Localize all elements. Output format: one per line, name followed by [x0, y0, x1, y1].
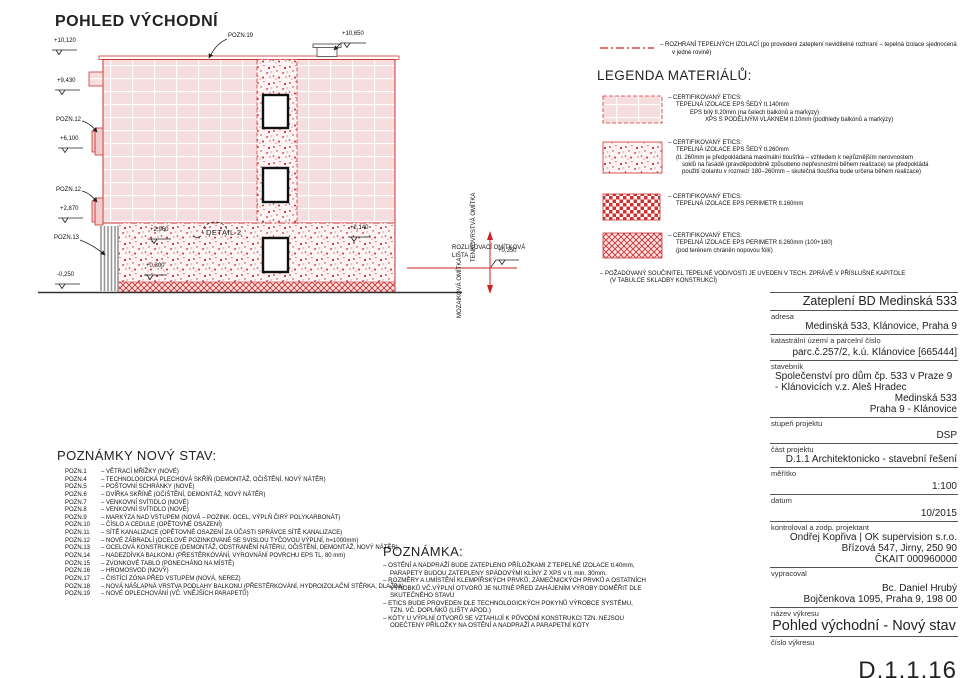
note-ref-label: POZN.12 [56, 187, 81, 193]
remark-line: – KÓTY U VÝPLNÍ OTVORŮ SE VZTAHUJÍ K PŮV… [383, 615, 646, 623]
note-row: POZN.19– NOVÉ OPLECHOVÁNÍ (VČ. VNĚJŠÍCH … [65, 591, 404, 597]
note-id: POZN.14 [65, 553, 101, 559]
note-text: – TECHNOLOGICKÁ PLECHOVÁ SKŘÍŇ (DEMONTÁŽ… [101, 477, 326, 483]
note-row: POZN.8– VENKOVNÍ SVÍTIDLO (NOVÉ) [65, 507, 404, 513]
field-nazev: název výkresu Pohled východní - Nový sta… [770, 608, 958, 637]
field-katastr: katastrální území a parcelní číslo parc.… [770, 335, 958, 361]
note-ref-label: POZN.19 [228, 33, 253, 39]
note-id: POZN.10 [65, 522, 101, 528]
note-id: POZN.18 [65, 584, 101, 590]
elevation-label: +10,120 [54, 38, 76, 44]
field-value: Bojčenkova 1095, Praha 9, 198 00 [771, 594, 957, 605]
legend-line: TEPELNÁ IZOLACE EPS ŠEDÝ tl.260mm [668, 147, 929, 154]
legend-line: TEPELNÁ IZOLACE EPS PERIMETR tl.160mm [668, 201, 803, 208]
drawing-title: POHLED VÝCHODNÍ [55, 13, 218, 31]
note-id: POZN.9 [65, 515, 101, 521]
note-text: – NADEZDÍVKA BALKONU (PŘESTĚRKOVÁNÍ, VYR… [101, 553, 345, 559]
note-id: POZN.5 [65, 484, 101, 490]
render-bottom-label: MOZAIKOVÁ OMÍTKA [457, 258, 463, 318]
field-label: katastrální území a parcelní číslo [771, 336, 957, 345]
remark-line: – ROZMĚRY A UMÍSTĚNÍ KLEMPÍŘSKÝCH PRVKŮ,… [383, 577, 646, 585]
drawing-number: D.1.1.16 [771, 657, 957, 678]
elevation-label: +6,100 [60, 136, 79, 142]
note-row: POZN.11– SÍTĚ KANALIZACE (OPĚTOVNÉ OSAZE… [65, 530, 404, 536]
note-id: POZN.17 [65, 576, 101, 582]
note-text: – NOVÉ ZÁBRADLÍ (OCELOVÉ POZINKOVANÉ SE … [101, 538, 358, 544]
field-stupen: stupeň projektu DSP [770, 418, 958, 444]
note-row: POZN.12– NOVÉ ZÁBRADLÍ (OCELOVÉ POZINKOV… [65, 538, 404, 544]
elevation-label: +9,430 [57, 78, 76, 84]
note-id: POZN.13 [65, 545, 101, 551]
legend-item: – CERTIFIKOVANÝ ETICS: TEPELNÁ IZOLACE E… [668, 233, 833, 255]
elevation-label: -0,250 [57, 272, 74, 278]
note-text: – HROMOSVOD (NOVÝ) [101, 568, 169, 574]
note-id: POZN.4 [65, 477, 101, 483]
remark-line: ODEČTENY PŘÍLOŽKY NA OSTĚNÍ A NADPRAŽÍ A… [383, 622, 646, 630]
detail-label: DETAIL 2 [206, 228, 242, 237]
note-row: POZN.10– ČÍSLO A CEDULE (OPĚTOVNÉ OSAZEN… [65, 522, 404, 528]
note-text: – VENKOVNÍ SVÍTIDLO (NOVÉ) [101, 500, 189, 506]
field-label: číslo výkresu [771, 638, 957, 647]
field-label: stupeň projektu [771, 419, 957, 428]
remark-line: – OSTĚNÍ A NADPRAŽÍ BUDE ZATEPLENO PŘÍLO… [383, 562, 646, 570]
field-datum: datum 10/2015 [770, 495, 958, 522]
legend-item: – CERTIFIKOVANÝ ETICS: TEPELNÁ IZOLACE E… [668, 140, 929, 176]
elevation-label: +2,960 [150, 227, 169, 233]
elevation-label: +2,870 [60, 206, 79, 212]
field-kontroloval: kontroloval a zodp. projektant Ondřej Ko… [770, 522, 958, 568]
field-cast: část projektu D.1.1 Architektonicko - st… [770, 444, 958, 468]
project-title: Zateplení BD Medinská 533 [770, 293, 958, 311]
note-id: POZN.15 [65, 561, 101, 567]
notes-list: POZN.1– VĚTRACÍ MŘÍŽKY (NOVÉ) POZN.4– TE… [65, 469, 404, 599]
legend-line: soklů na fasádě (pravděpodobně způsobeno… [668, 162, 929, 169]
note-row: POZN.4– TECHNOLOGICKÁ PLECHOVÁ SKŘÍŇ (DE… [65, 477, 404, 483]
field-value: Ondřej Kopřiva | OK supervision s.r.o. [771, 532, 957, 543]
note-id: POZN.7 [65, 500, 101, 506]
note-id: POZN.6 [65, 492, 101, 498]
note-row: POZN.14– NADEZDÍVKA BALKONU (PŘESTĚRKOVÁ… [65, 553, 404, 559]
boundary-note-line: – ROZHRANÍ TEPELNÝCH IZOLACÍ (po provede… [660, 42, 957, 48]
note-text: – DVÍŘKA SKŘÍNĚ (OČIŠTĚNÍ, DEMONTÁŽ, NOV… [101, 492, 265, 498]
note-row: POZN.7– VENKOVNÍ SVÍTIDLO (NOVÉ) [65, 500, 404, 506]
legend-line: EPS bílý tl.20mm (na čelech balkónů a ma… [668, 110, 893, 117]
legend-footnote: – POŽADOVANÝ SOUČINITEL TEPELNÉ VODIVOST… [600, 271, 905, 286]
field-label: měřítko [771, 469, 957, 478]
field-label: vypracoval [771, 569, 957, 578]
remark-list: – OSTĚNÍ A NADPRAŽÍ BUDE ZATEPLENO PŘÍLO… [383, 562, 646, 630]
legend-line: (pod terénem chráněn nopovou fólií) [668, 248, 833, 255]
field-value: parc.č.257/2, k.ú. Klánovice [665444] [771, 347, 957, 358]
legend-line: XPS S PODÉLNÝM VLÁKNEM tl.10mm (podhledy… [668, 117, 893, 124]
field-label: adresa [771, 312, 957, 321]
note-text: – NOVÁ NÁŠLAPNÁ VRSTVA PODLAHY BALKONU (… [101, 584, 404, 590]
field-value: Břízová 547, Jirny, 250 90 [771, 543, 957, 554]
boundary-note-line: v jedné rovině) [672, 50, 711, 56]
field-value: DSP [771, 430, 957, 441]
note-text: – SÍTĚ KANALIZACE (OPĚTOVNÉ OSAZENÍ ZA Ú… [101, 530, 342, 536]
note-id: POZN.11 [65, 530, 101, 536]
windows [263, 95, 288, 272]
note-row: POZN.17– ČISTÍCÍ ZÓNA PŘED VSTUPEM (NOVÁ… [65, 576, 404, 582]
field-vypracoval: vypracoval Bc. Daniel Hrubý Bojčenkova 1… [770, 568, 958, 608]
drawing-sheet: POHLED VÝCHODNÍ +10,120 +9,430 POZN.12 +… [0, 0, 960, 678]
note-row: POZN.16– HROMOSVOD (NOVÝ) [65, 568, 404, 574]
elevation-label: +10,650 [342, 31, 364, 37]
note-text: – ZVONKOVÉ TABLO (PONECHÁNO NA MÍSTĚ) [101, 561, 234, 567]
note-text: – ČISTÍCÍ ZÓNA PŘED VSTUPEM (NOVÁ, NEREZ… [101, 576, 241, 582]
note-id: POZN.16 [65, 568, 101, 574]
field-label: stavebník [771, 362, 957, 371]
field-meritko: měřítko 1:100 [770, 468, 958, 495]
note-text: – POŠTOVNÍ SCHRÁNKY (NOVÉ) [101, 484, 194, 490]
field-value: 1:100 [771, 481, 957, 492]
field-label: název výkresu [771, 609, 957, 618]
edge-strip-label: ROZLIŠOVACÍ OMÍTKOVÁ [452, 245, 525, 251]
remark-line: TZN. VČ. DOPLŇKŮ (LIŠTY APOD.) [383, 607, 646, 615]
drawing-name: Pohled východní - Nový stav [771, 618, 957, 634]
legend-item: – CERTIFIKOVANÝ ETICS: TEPELNÁ IZOLACE E… [668, 194, 803, 209]
note-ref-label: POZN.12 [56, 117, 81, 123]
legend-line: (V TABULCE SKLADBY KONSTRUKCÍ) [600, 278, 905, 285]
note-id: POZN.19 [65, 591, 101, 597]
note-text: – NOVÉ OPLECHOVÁNÍ (VČ. VNĚJŠÍCH PARAPET… [101, 591, 249, 597]
legend-line: použití izolantu v rozmezí 180–260mm – s… [668, 169, 929, 176]
note-id: POZN.12 [65, 538, 101, 544]
remark-line: – ETICS BUDE PROVEDEN DLE TECHNOLOGICKÝC… [383, 600, 646, 608]
remark-title: POZNÁMKA: [383, 544, 463, 559]
note-row: POZN.6– DVÍŘKA SKŘÍNĚ (OČIŠTĚNÍ, DEMONTÁ… [65, 492, 404, 498]
field-label: část projektu [771, 445, 957, 454]
balcony-edges [92, 128, 103, 225]
remark-line: VÝROBKŮ VČ.VÝPLNÍ OTVORŮ JE NUTNÉ PŘED Z… [383, 585, 646, 593]
note-text: – OCELOVÁ KONSTRUKCE (DEMONTÁŽ, ODSTRANĚ… [101, 545, 398, 551]
field-value: Praha 9 - Klánovice [771, 404, 957, 415]
legend-line: TEPELNÁ IZOLACE EPS ŠEDÝ tl.140mm [668, 102, 893, 109]
note-text: – ČÍSLO A CEDULE (OPĚTOVNÉ OSAZENÍ) [101, 522, 222, 528]
notes-title: POZNÁMKY NOVÝ STAV: [57, 448, 217, 463]
note-row: POZN.18– NOVÁ NÁŠLAPNÁ VRSTVA PODLAHY BA… [65, 584, 404, 590]
note-row: POZN.13– OCELOVÁ KONSTRUKCE (DEMONTÁŽ, O… [65, 545, 404, 551]
note-id: POZN.8 [65, 507, 101, 513]
remark-line: SKUTEČNÉHO STAVU [383, 592, 646, 600]
note-row: POZN.15– ZVONKOVÉ TABLO (PONECHÁNO NA MÍ… [65, 561, 404, 567]
note-row: POZN.9– MARKÝZA NAD VSTUPEM (NOVÁ – POZI… [65, 515, 404, 521]
field-value: D.1.1 Architektonicko - stavební řešení [771, 454, 957, 465]
remark-line: PARAPETY BUDOU ZATEPLENY SPÁDOVÝMI KLÍNY… [383, 570, 646, 578]
field-value: ČKAIT 000960000 [771, 554, 957, 565]
note-text: – VENKOVNÍ SVÍTIDLO (NOVÉ) [101, 507, 189, 513]
elevation-label: +0,300 [146, 263, 165, 269]
note-id: POZN.1 [65, 469, 101, 475]
field-label: datum [771, 496, 957, 505]
note-text: – MARKÝZA NAD VSTUPEM (NOVÁ – POZINK. OC… [101, 515, 340, 521]
field-value: Společenství pro dům čp. 533 v Praze 9 [771, 371, 957, 382]
field-adresa: adresa Medinská 533, Klánovice, Praha 9 [770, 311, 958, 335]
elevation-label: +2,140 [350, 225, 369, 231]
legend-item: – CERTIFIKOVANÝ ETICS: TEPELNÁ IZOLACE E… [668, 95, 893, 124]
field-label: kontroloval a zodp. projektant [771, 523, 957, 532]
field-value: 10/2015 [771, 508, 957, 519]
field-value: - Klánovicích v.z. Aleš Hradec [771, 382, 957, 393]
field-value: Medinská 533 [771, 393, 957, 404]
title-block: Zateplení BD Medinská 533 adresa Medinsk… [770, 292, 958, 678]
field-stavebnik: stavebník Společenství pro dům čp. 533 v… [770, 361, 958, 418]
chimney [313, 44, 341, 57]
legend-title: LEGENDA MATERIÁLŮ: [597, 68, 752, 83]
legend-line: TEPELNÁ IZOLACE EPS PERIMETR tl.260mm (1… [668, 240, 833, 247]
note-row: POZN.5– POŠTOVNÍ SCHRÁNKY (NOVÉ) [65, 484, 404, 490]
legend-line: (tl. 260mm je předpokládaná maximální tl… [668, 155, 929, 162]
field-value: Medinská 533, Klánovice, Praha 9 [771, 321, 957, 332]
render-top-label: TENKOVRSTVÁ OMÍTKA [471, 193, 477, 262]
note-text: – VĚTRACÍ MŘÍŽKY (NOVÉ) [101, 469, 179, 475]
field-cislo: číslo výkresu D.1.1.16 [770, 637, 958, 678]
building-elevation [38, 44, 462, 293]
downspout [101, 226, 118, 291]
field-value: Bc. Daniel Hrubý [771, 583, 957, 594]
note-row: POZN.1– VĚTRACÍ MŘÍŽKY (NOVÉ) [65, 469, 404, 475]
note-ref-label: POZN.13 [54, 235, 79, 241]
